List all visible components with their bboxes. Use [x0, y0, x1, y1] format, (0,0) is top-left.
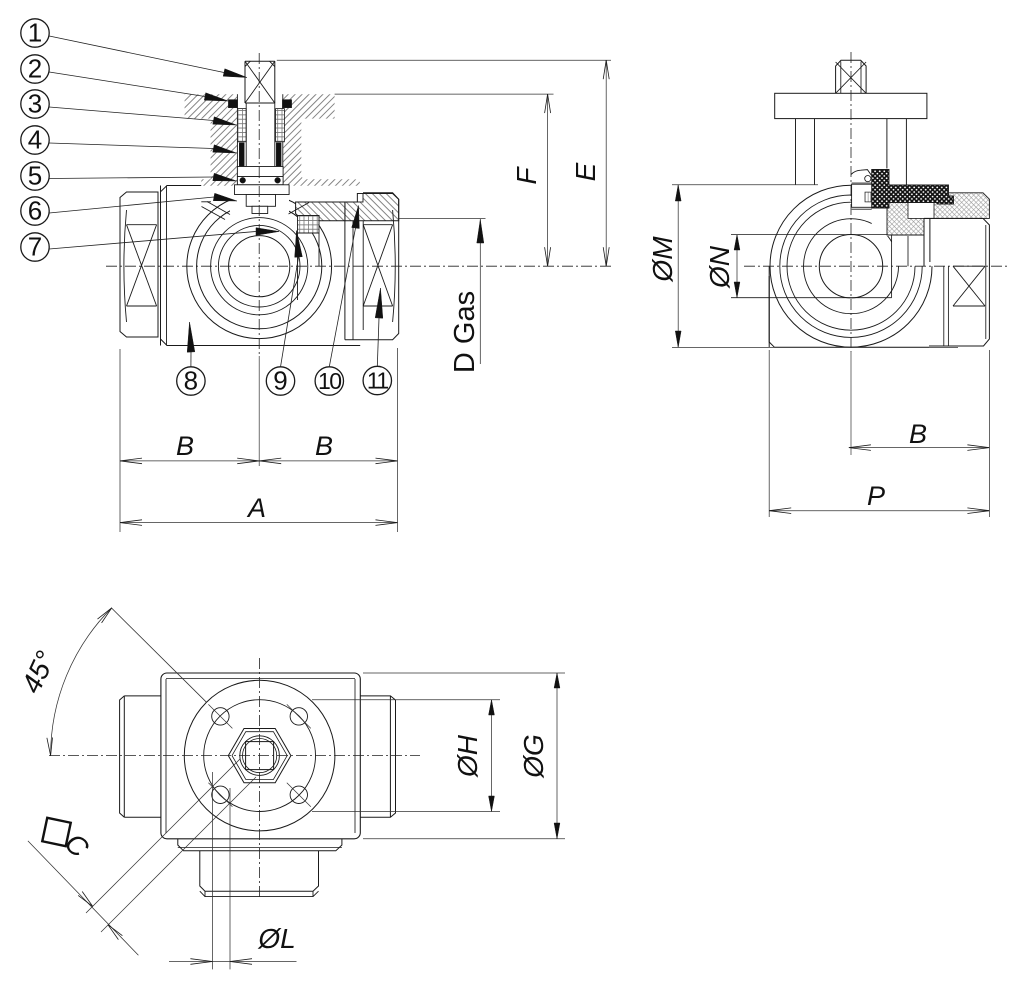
svg-text:A: A [246, 493, 266, 523]
svg-text:10: 10 [318, 368, 341, 394]
svg-text:8: 8 [184, 366, 198, 396]
svg-text:6: 6 [28, 196, 42, 226]
svg-text:B: B [315, 431, 333, 461]
svg-text:F: F [511, 166, 542, 185]
svg-text:2: 2 [28, 54, 42, 84]
svg-text:9: 9 [273, 366, 287, 396]
svg-text:5: 5 [28, 161, 42, 191]
svg-text:4: 4 [28, 125, 42, 155]
svg-text:ØH: ØH [452, 734, 483, 778]
svg-text:D Gas: D Gas [449, 291, 481, 373]
svg-text:E: E [570, 162, 601, 181]
svg-text:7: 7 [28, 232, 42, 262]
svg-text:P: P [867, 481, 885, 511]
svg-text:ØM: ØM [647, 236, 678, 283]
svg-text:11: 11 [367, 368, 389, 394]
svg-text:ØG: ØG [518, 734, 549, 779]
svg-text:ØL: ØL [257, 923, 295, 954]
svg-text:ØN: ØN [704, 245, 735, 289]
svg-text:1: 1 [28, 18, 42, 48]
svg-text:B: B [176, 431, 194, 461]
svg-text:B: B [909, 419, 927, 449]
svg-text:3: 3 [28, 89, 42, 119]
